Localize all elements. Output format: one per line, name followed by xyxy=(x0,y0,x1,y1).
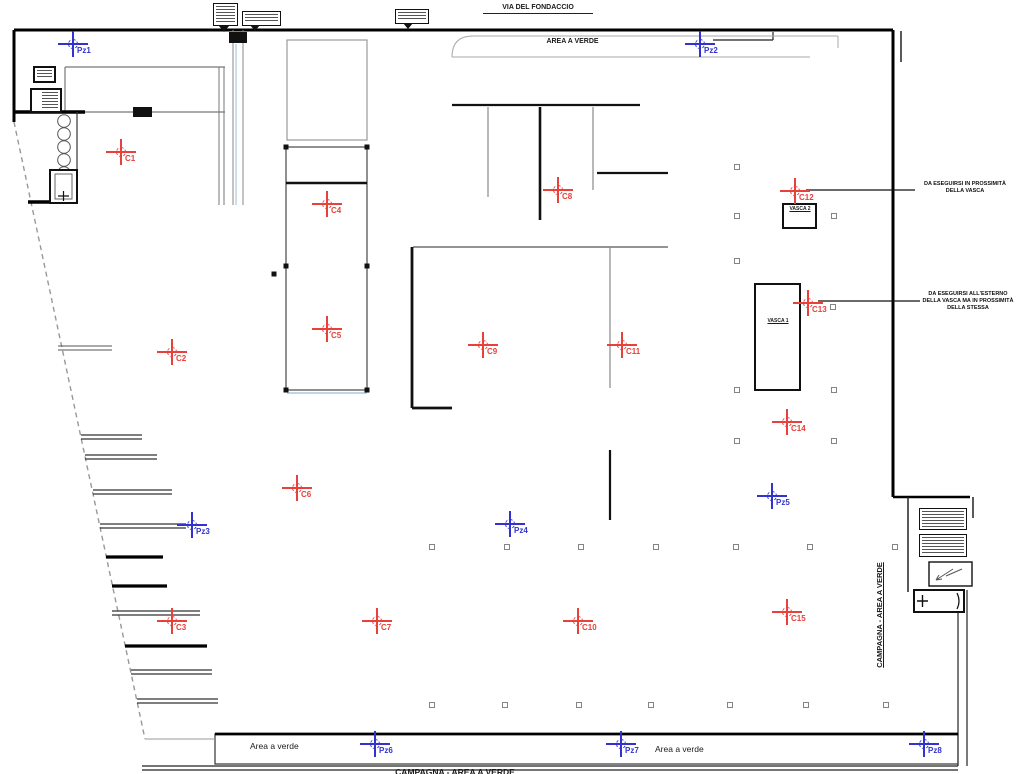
post-square xyxy=(832,388,837,393)
annotation-line: DA ESEGUIRSI ALL'ESTERNO xyxy=(920,291,1016,298)
symbol-stripes xyxy=(42,92,58,109)
site-plan-linework xyxy=(0,0,1016,774)
post-square xyxy=(893,545,898,550)
cross-marker-c xyxy=(782,417,792,427)
sample-point-Pz3: Pz3 xyxy=(177,512,207,538)
sample-point-C5: C5 xyxy=(312,316,342,342)
cross-marker-c xyxy=(505,519,515,529)
post-square xyxy=(654,545,659,550)
post-square xyxy=(804,703,809,708)
point-label: Pz7 xyxy=(625,746,639,755)
illegible-text xyxy=(245,14,278,23)
annotation-line: DELLA VASCA xyxy=(917,188,1013,195)
annotation-vasca1: DA ESEGUIRSI ALL'ESTERNO DELLA VASCA MA … xyxy=(920,291,1016,312)
sample-point-C13: C13 xyxy=(793,290,823,316)
sample-point-C8: C8 xyxy=(543,177,573,203)
point-label: C8 xyxy=(562,192,572,201)
post-square xyxy=(734,545,739,550)
bottom-boundary-label: CAMPAGNA - AREA A VERDE xyxy=(360,767,550,774)
sample-point-Pz4: Pz4 xyxy=(495,511,525,537)
sample-point-C9: C9 xyxy=(468,332,498,358)
post-square xyxy=(728,703,733,708)
point-label: C2 xyxy=(176,354,186,363)
post-square xyxy=(832,214,837,219)
point-label: C9 xyxy=(487,347,497,356)
point-label: C15 xyxy=(791,614,806,623)
cross-marker-c xyxy=(478,340,488,350)
bottom-green-area-label-right: Area a verde xyxy=(655,744,735,754)
cross-marker-c xyxy=(322,324,332,334)
point-label: C3 xyxy=(176,623,186,632)
illegible-text xyxy=(216,6,235,23)
illegible-text xyxy=(922,511,964,527)
sample-point-Pz8: Pz8 xyxy=(909,731,939,757)
point-label: C6 xyxy=(301,490,311,499)
illegible-text xyxy=(398,12,426,21)
legend-symbol-box-2 xyxy=(30,88,62,113)
sample-point-C10: C10 xyxy=(563,608,593,634)
post-square xyxy=(503,703,508,708)
cross-marker-c xyxy=(782,607,792,617)
sample-point-C3: C3 xyxy=(157,608,187,634)
cross-marker-c xyxy=(68,39,78,49)
cross-marker-c xyxy=(553,185,563,195)
callout-box-1 xyxy=(213,3,238,26)
point-label: C11 xyxy=(626,347,640,356)
cross-marker-c xyxy=(370,739,380,749)
callout-box-2 xyxy=(242,11,281,26)
point-label: C7 xyxy=(381,623,391,632)
illegible-text xyxy=(922,537,964,554)
sample-point-Pz2: Pz2 xyxy=(685,31,715,57)
sample-point-Pz1: Pz1 xyxy=(58,31,88,57)
cross-marker-c xyxy=(767,491,777,501)
cross-marker-c xyxy=(616,739,626,749)
right-boundary-label: CAMPAGNA - AREA A VERDE xyxy=(875,510,884,720)
point-label: Pz2 xyxy=(704,46,718,55)
equipment-box-1 xyxy=(919,508,967,530)
point-label: C10 xyxy=(582,623,597,632)
sample-point-C1: C1 xyxy=(106,139,136,165)
cross-marker-c xyxy=(292,483,302,493)
bottom-green-area-label-left: Area a verde xyxy=(250,741,330,751)
sample-point-C14: C14 xyxy=(772,409,802,435)
point-label: C12 xyxy=(799,193,814,202)
site-plan-canvas: VIA DEL FONDACCIO AREA A VERDE Area a ve… xyxy=(0,0,1016,774)
post-square xyxy=(808,545,813,550)
point-label: Pz6 xyxy=(379,746,393,755)
post-square xyxy=(831,305,836,310)
cross-marker-c xyxy=(617,340,627,350)
road-label: VIA DEL FONDACCIO xyxy=(483,4,593,14)
point-label: Pz3 xyxy=(196,527,210,536)
cross-marker-c xyxy=(322,199,332,209)
cross-marker-c xyxy=(167,616,177,626)
cross-marker-c xyxy=(372,616,382,626)
post-square xyxy=(577,703,582,708)
sample-point-Pz5: Pz5 xyxy=(757,483,787,509)
cross-marker-c xyxy=(803,298,813,308)
sample-point-Pz7: Pz7 xyxy=(606,731,636,757)
point-label: C4 xyxy=(331,206,341,215)
point-label: C1 xyxy=(125,154,135,163)
post-square xyxy=(735,214,740,219)
post-square xyxy=(735,165,740,170)
point-label: Pz8 xyxy=(928,746,942,755)
cross-marker-c xyxy=(167,347,177,357)
point-label: C13 xyxy=(812,305,827,314)
annotation-line: DELLA STESSA xyxy=(920,305,1016,312)
post-square xyxy=(735,259,740,264)
sample-point-C4: C4 xyxy=(312,191,342,217)
post-square xyxy=(579,545,584,550)
point-label: C14 xyxy=(791,424,806,433)
sample-point-C7: C7 xyxy=(362,608,392,634)
post-square xyxy=(735,439,740,444)
sample-point-C6: C6 xyxy=(282,475,312,501)
cross-marker-c xyxy=(187,520,197,530)
post-square xyxy=(505,545,510,550)
sample-point-C12: C12 xyxy=(780,178,810,204)
sample-point-C11: C11 xyxy=(607,332,637,358)
point-label: Pz1 xyxy=(77,46,91,55)
top-green-area-label: AREA A VERDE xyxy=(500,38,645,45)
cross-marker-c xyxy=(573,616,583,626)
callout-box-3 xyxy=(395,9,429,24)
point-label: Pz4 xyxy=(514,526,528,535)
sample-point-Pz6: Pz6 xyxy=(360,731,390,757)
cross-marker-c xyxy=(790,186,800,196)
post-square xyxy=(430,545,435,550)
post-square xyxy=(735,388,740,393)
sample-point-C2: C2 xyxy=(157,339,187,365)
cross-marker-c xyxy=(116,147,126,157)
point-label: C5 xyxy=(331,331,341,340)
vasca1-label: VASCA 1 xyxy=(757,318,799,324)
cross-marker-c xyxy=(695,39,705,49)
legend-symbol-box-1 xyxy=(33,66,56,83)
post-square xyxy=(430,703,435,708)
sample-point-C15: C15 xyxy=(772,599,802,625)
post-square xyxy=(649,703,654,708)
annotation-vasca2: DA ESEGUIRSI IN PROSSIMITÀ DELLA VASCA xyxy=(917,181,1013,195)
post-square xyxy=(832,439,837,444)
equipment-box-2 xyxy=(919,534,967,557)
annotation-line: DELLA VASCA MA IN PROSSIMITÀ xyxy=(920,298,1016,305)
point-label: Pz5 xyxy=(776,498,790,507)
cross-marker-c xyxy=(919,739,929,749)
annotation-line: DA ESEGUIRSI IN PROSSIMITÀ xyxy=(917,181,1013,188)
post-square xyxy=(884,703,889,708)
symbol-stripes xyxy=(37,70,52,79)
vasca2-label: VASCA 2 xyxy=(785,206,815,212)
